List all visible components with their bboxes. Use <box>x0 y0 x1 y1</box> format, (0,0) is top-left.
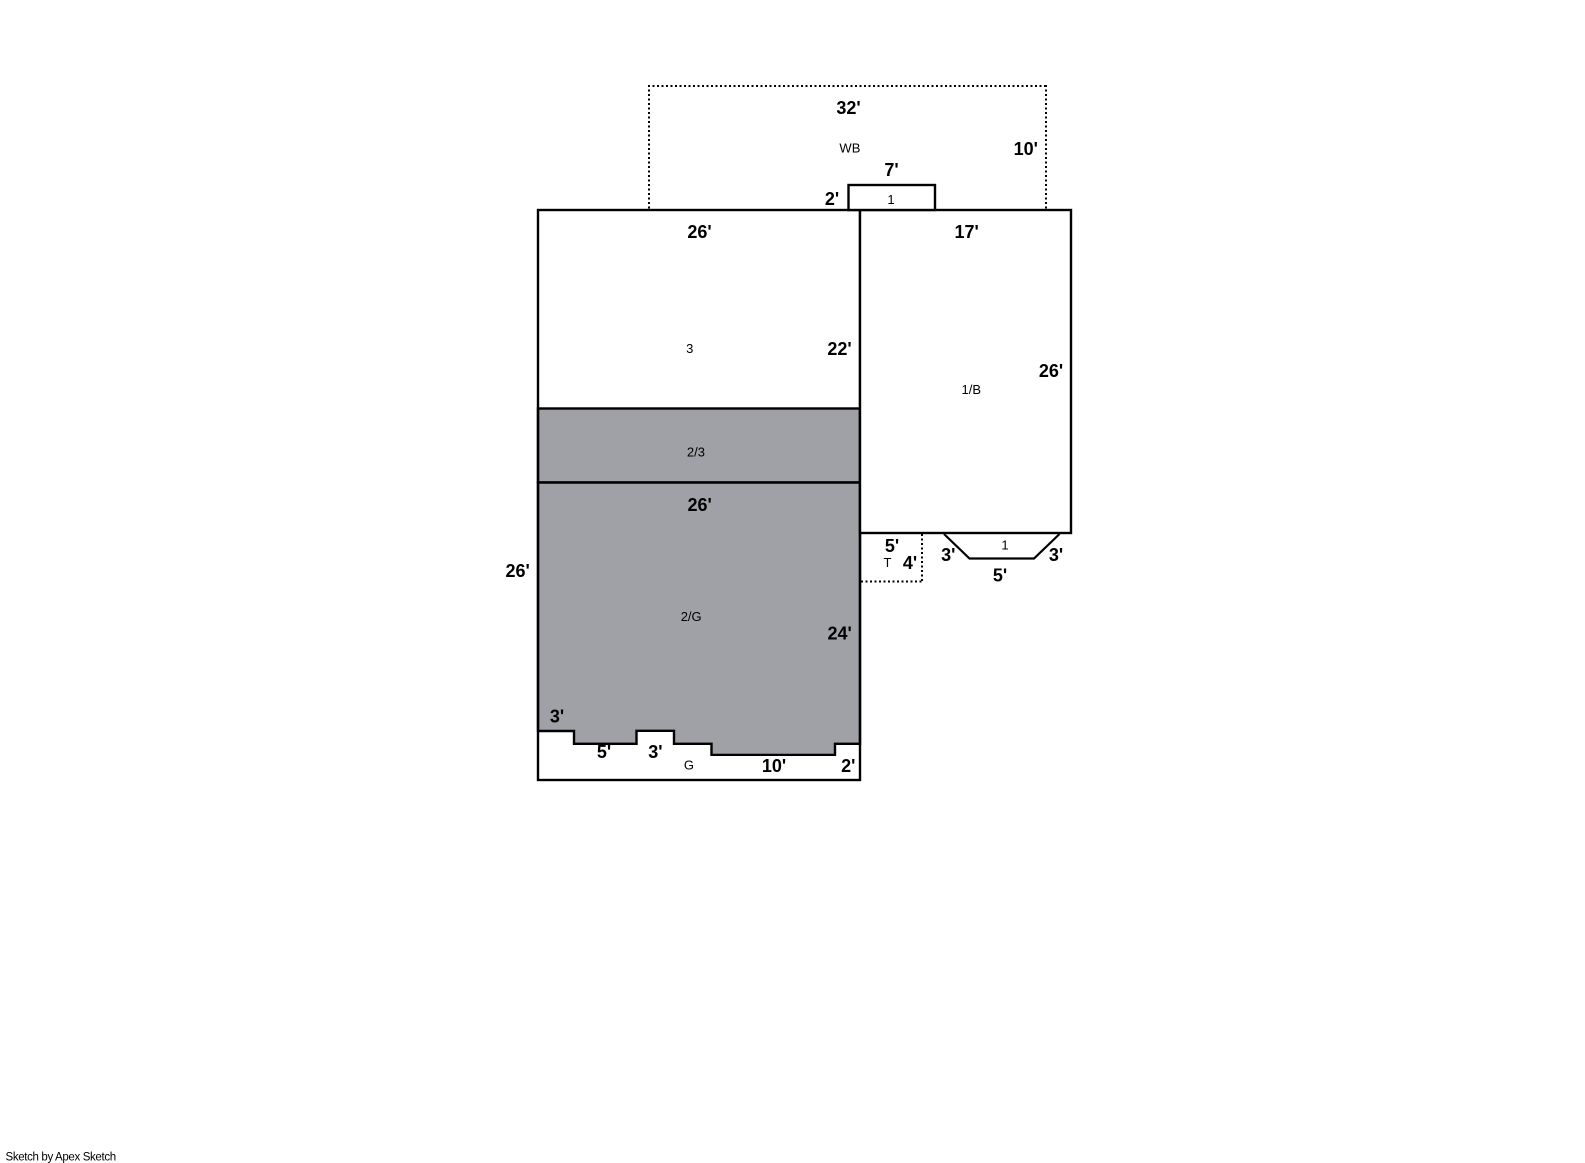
svg-text:WB: WB <box>839 140 860 155</box>
svg-text:10': 10' <box>762 756 786 776</box>
svg-text:17': 17' <box>955 222 979 242</box>
svg-text:5': 5' <box>597 742 611 762</box>
svg-text:3: 3 <box>686 341 693 356</box>
svg-text:5': 5' <box>993 566 1007 586</box>
svg-text:1: 1 <box>1001 538 1008 553</box>
svg-text:2/G: 2/G <box>681 609 702 624</box>
svg-text:3': 3' <box>1049 545 1063 565</box>
svg-text:4': 4' <box>903 553 917 573</box>
svg-text:24': 24' <box>827 624 851 644</box>
svg-text:2': 2' <box>841 756 855 776</box>
svg-text:2/3: 2/3 <box>687 445 705 460</box>
svg-text:5': 5' <box>885 536 899 556</box>
svg-text:G: G <box>684 758 694 773</box>
svg-text:1/B: 1/B <box>962 382 982 397</box>
svg-text:3': 3' <box>941 545 955 565</box>
svg-text:26': 26' <box>687 495 711 515</box>
svg-text:26': 26' <box>687 222 711 242</box>
svg-text:3': 3' <box>648 742 662 762</box>
svg-text:Sketch by Apex Sketch: Sketch by Apex Sketch <box>6 1152 116 1163</box>
svg-text:26': 26' <box>505 561 529 581</box>
svg-text:32': 32' <box>836 98 860 118</box>
svg-text:10': 10' <box>1014 139 1038 159</box>
svg-text:26': 26' <box>1039 361 1063 381</box>
svg-text:1: 1 <box>887 192 894 207</box>
svg-text:22': 22' <box>827 339 851 359</box>
svg-text:2': 2' <box>825 189 839 209</box>
svg-text:7': 7' <box>884 160 898 180</box>
svg-text:3': 3' <box>550 707 564 727</box>
svg-text:T: T <box>884 555 892 570</box>
